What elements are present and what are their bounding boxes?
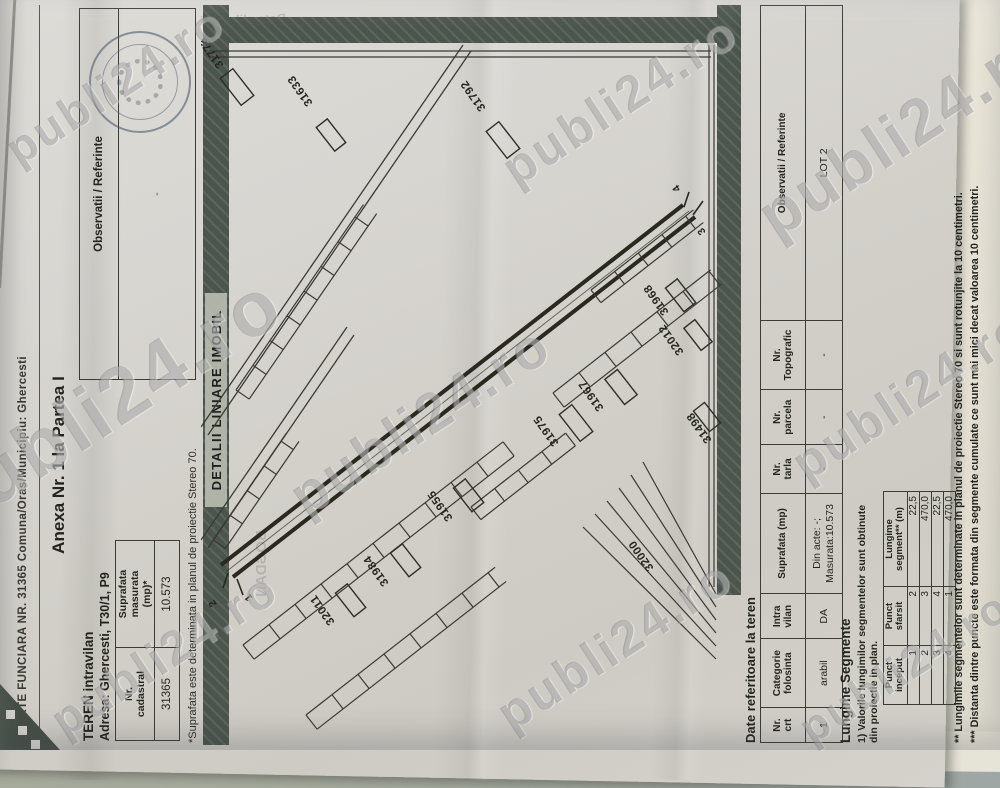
strip-end-ticks [223, 192, 703, 595]
segment-cell: 22,5 [931, 492, 943, 587]
segments-table: Punct inceputPunct sfarsitLungime segmen… [883, 491, 956, 705]
teren-column-header: Categorie folosinta [761, 639, 806, 708]
lungime-segmente-title: Lungime Segmente [838, 618, 853, 743]
teren-column-header: Nr. Topografic [761, 320, 806, 389]
parcel-number-label: 32012 [657, 322, 687, 357]
plan-roads [201, 45, 471, 548]
segment-row: 23470,0 [919, 492, 931, 705]
strip-point-label: 1 [242, 591, 255, 603]
segment-cell: 3 [931, 646, 943, 705]
teren-cell: Din acte: -; Masurata:10.573 [806, 493, 843, 594]
parcel-number-label: 31498 [685, 410, 715, 445]
teren-cell: arabil [806, 639, 843, 708]
teren-column-header: Suprafata (mp) [761, 493, 806, 594]
teren-cell: - [806, 390, 843, 445]
cadastral-summary-table: Nr. cadastral Suprafata masurata (mp)* 3… [115, 540, 180, 741]
teren-cell: LOT 2 [806, 6, 843, 321]
teren-cell: - [806, 445, 843, 493]
round-stamp [89, 31, 191, 133]
segment-column-header: Punct inceput [884, 646, 908, 705]
date-referitoare-la-teren-table: Nr. crtCategorie folosintaIntra vilanSup… [760, 5, 843, 743]
teren-column-header: Nr. crt [761, 708, 806, 743]
plan-border-roads [209, 45, 714, 587]
teren-table-value-row: 1arabilDADin acte: -; Masurata:10.573---… [806, 6, 843, 743]
teren-column-header: Nr. parcela [761, 390, 806, 445]
teren-cell: DA [806, 594, 843, 639]
segment-cell: 1 [907, 646, 919, 705]
nr-cadastral-value: 31365 [155, 648, 180, 741]
nr-cadastral-header: Nr. cadastral [116, 648, 155, 741]
teren-intravilan-label: TEREN intravilan [81, 631, 96, 741]
lungime-segmente-note: 1) Valorile lungimilor segmentelor sunt … [856, 503, 880, 743]
photographed-cadastral-document: { "photo": { "watermark_text": "publi24.… [0, 0, 1000, 750]
segment-cell: 2 [907, 587, 919, 646]
cadastral-plan-drawing: DETALII LINIARE IMOBIL 1234 [201, 5, 751, 745]
adresa-line: Adresa: Ghercesti, T30/1, P9 [98, 572, 112, 741]
dark-corner-object [0, 684, 60, 750]
segments-footnote-2: *** Distanta dintre puncte este formata … [969, 7, 981, 743]
suprafata-masurata-value: 10.573 [155, 541, 180, 648]
teren-cell: - [806, 320, 843, 389]
teren-table-header-row: Nr. crtCategorie folosintaIntra vilanSup… [761, 6, 806, 743]
teren-column-header: Intra vilan [761, 594, 806, 639]
segment-column-header: Lungime segment** (m) [884, 492, 908, 587]
segment-cell: 3 [919, 587, 931, 646]
segment-row: 3422,5 [931, 492, 943, 705]
segment-cell: 22,5 [907, 492, 919, 587]
parcel-number-label: 31975 [532, 413, 562, 448]
strip-point-label: 4 [670, 182, 683, 194]
building-rects [220, 69, 720, 617]
plan-bottom-band [717, 5, 741, 595]
plan-title: DETALII LINIARE IMOBIL [209, 310, 224, 491]
parcel-number-label: 31984 [362, 553, 392, 588]
parcel-number-label: 31633 [286, 73, 316, 108]
teren-table-title: Date referitoare la teren [743, 597, 758, 743]
segments-footnote-1: ** Lungimile segmentelor sunt determinat… [953, 7, 965, 743]
header-rule [39, 5, 40, 745]
cadastral-document-page: CARTE FUNCIARA NR. 31365 Comuna/Oras/Mun… [5, 5, 995, 745]
teren-column-header: Observatii / Referinte [761, 6, 806, 321]
round-stamp-text-arc [117, 59, 163, 105]
teren-cell: 1 [806, 708, 843, 743]
parcel-number-label: 31792 [459, 78, 489, 113]
parcel-number-label: 31967 [577, 378, 607, 413]
plan-right-band [203, 17, 723, 43]
carte-funciara-header: CARTE FUNCIARA NR. 31365 Comuna/Oras/Mun… [17, 11, 29, 735]
segment-cell: 4 [931, 587, 943, 646]
segment-cell: 2 [919, 646, 931, 705]
segment-cell: 470,0 [919, 492, 931, 587]
teren-column-header: Nr. tarla [761, 445, 806, 493]
page-title: Anexa Nr. 1 la Partea I [49, 185, 69, 745]
segment-row: 1222,5 [907, 492, 919, 705]
suprafata-masurata-header: Suprafata masurata (mp)* [116, 541, 155, 648]
segment-column-header: Punct sfarsit [884, 587, 908, 646]
